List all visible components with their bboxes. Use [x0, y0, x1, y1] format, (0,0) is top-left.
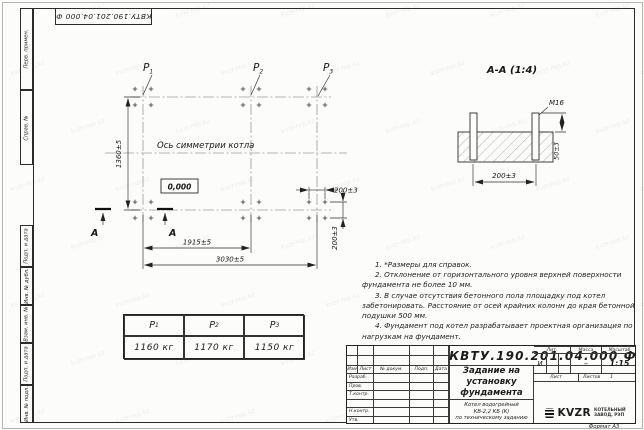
margin-cell-inv-podl: Инв. № подл. [20, 385, 33, 423]
hdr-sub: 3 [275, 322, 279, 329]
note-2: 2. Отклонение от горизонтального уровня … [362, 270, 636, 290]
hdr-dokum: № докум. [374, 366, 410, 374]
hdr-podp: Подп. [410, 366, 434, 374]
lit-cell-2 [547, 354, 559, 374]
load-value-p3: 1150 кг [244, 336, 305, 360]
cell [374, 356, 410, 366]
role-razrab: Разраб. [347, 374, 374, 383]
cell [434, 356, 449, 366]
cell [410, 383, 434, 392]
p1-sub: 1 [149, 69, 153, 76]
title-line: фундамента [460, 388, 522, 399]
hdr-sub: 2 [215, 322, 219, 329]
lit-header: Лит. [534, 346, 571, 354]
product-line: КВ-2,2 КБ (К) [474, 409, 510, 416]
role-empty [347, 400, 374, 409]
margin-label: Инв. № дубл. [24, 268, 30, 304]
kvzr-logo-text: KVZR [557, 407, 591, 419]
title-block-product: Котел водогрейный КВ-2,2 КБ (К) по техни… [449, 400, 534, 424]
title-block: Изм Лист № докум. Подп. Дата Разраб. Про… [346, 345, 636, 424]
cell [374, 346, 410, 356]
cell [434, 374, 449, 383]
mass-header: Масса [571, 346, 602, 354]
hdr-list: Лист [358, 366, 374, 374]
dim-bolt-spacing: 200±3 [492, 172, 516, 180]
section-title: А-А (1:4) [486, 65, 537, 76]
load-table-header-p3: P3 [244, 315, 305, 336]
cell [358, 346, 374, 356]
note-4: 4. Фундамент под котел разрабатывает про… [362, 321, 636, 341]
anchor-bolt-left [470, 113, 477, 160]
load-label-p2: P2 [253, 62, 263, 76]
role-prov: Пров. [347, 383, 374, 392]
scale-header: Масштаб [602, 346, 636, 354]
margin-cell-sprav-n: Справ. № [20, 90, 33, 165]
thread-label: М16 [549, 99, 564, 107]
watermark-text: kvzr-rep.kz [0, 1, 1, 20]
lit-cell-3 [559, 354, 571, 374]
hdr-data: Дата [434, 366, 449, 374]
cell [374, 391, 410, 400]
cell [374, 400, 410, 409]
cell [434, 400, 449, 409]
cell [434, 346, 449, 356]
title-line: установку [466, 377, 516, 388]
load-table: P1 P2 P3 1160 кг 1170 кг 1150 кг [123, 314, 304, 359]
dim-protrusion: 50±3 [553, 142, 561, 160]
scale-value: 1:15 [602, 354, 636, 374]
cell [410, 374, 434, 383]
cell [410, 417, 434, 425]
cell [410, 400, 434, 409]
cell [410, 356, 434, 366]
dim-bolt-h: 200±3 [334, 187, 358, 195]
cell [347, 356, 358, 366]
p3-sub: 3 [329, 69, 333, 76]
section-letter-right: А [168, 228, 176, 239]
kvzr-logo-icon [545, 408, 554, 418]
sheets-value: 1 [610, 375, 613, 380]
dim-bolt-v: 200±3 [331, 226, 339, 250]
anchor-bolt-marks [133, 87, 328, 221]
sheets-cell: Листов 1 [579, 374, 636, 382]
dim-3030: 3030±5 [216, 256, 245, 264]
p2-sub: 2 [259, 69, 263, 76]
lit-value: И [534, 354, 547, 374]
hdr-izm: Изм [347, 366, 358, 374]
cell [434, 383, 449, 392]
cell [374, 374, 410, 383]
cell [358, 356, 374, 366]
dim-1360: 1360±5 [115, 139, 123, 168]
margin-cell-podp-data-1: Подп. и дата [20, 225, 33, 267]
cell [374, 383, 410, 392]
p-label-leaders [143, 75, 330, 96]
sheet-label: Лист [534, 374, 579, 382]
role-nkontr: Н.контр. [347, 408, 374, 417]
margin-label: Инв. № подл. [24, 386, 30, 422]
format-label: Формат А3 [573, 424, 635, 430]
cell [434, 417, 449, 425]
role-tkontr: Т.контр. [347, 391, 374, 400]
product-line: по техническому заданию [455, 415, 527, 422]
m16-leader [539, 107, 548, 115]
cell [374, 417, 410, 425]
load-table-header-p1: P1 [124, 315, 184, 336]
level-mark: 0,000 [168, 183, 192, 192]
margin-cell-vzam-inv: Взам. инв. № [20, 305, 33, 343]
notes-block: 1. *Размеры для справок. 2. Отклонение о… [362, 260, 636, 342]
margin-cell-podp-data-2: Подп. и дата [20, 343, 33, 385]
watermark-text: kvzr-rep.kz [0, 117, 1, 136]
watermark-text: kvzr-rep.kz [0, 349, 1, 368]
title-block-title: Задание на установку фундамента [449, 366, 534, 400]
load-table-header-p2: P2 [184, 315, 244, 336]
company-name: КОТЕЛЬНЫЙ ЗАВОД, РЭП [594, 408, 626, 418]
hdr-sub: 1 [155, 322, 159, 329]
section-letter-left: А [90, 228, 98, 239]
role-utv: Утв. [347, 417, 374, 425]
company-line: ЗАВОД, РЭП [594, 413, 626, 418]
title-block-left-grid: Изм Лист № докум. Подп. Дата Разраб. Про… [347, 346, 449, 424]
anchor-bolt-right [532, 113, 539, 160]
load-value-p2: 1170 кг [184, 336, 244, 360]
cell [434, 391, 449, 400]
load-label-p1: P1 [143, 62, 153, 76]
cell [374, 408, 410, 417]
dim-ext-1360 [124, 97, 140, 210]
note-1: 1. *Размеры для справок. [362, 260, 636, 270]
cell [410, 391, 434, 400]
product-line: Котел водогрейный [464, 402, 518, 409]
cell [434, 408, 449, 417]
margin-label: Взам. инв. № [24, 306, 30, 341]
sheets-label: Листов [583, 375, 600, 380]
title-line: Задание на [463, 366, 520, 377]
cell [410, 408, 434, 417]
margin-cell-perv-primen: Перв. примен. [20, 8, 33, 90]
margin-label: Справ. № [24, 115, 30, 140]
bolt-axis-lines [131, 86, 331, 222]
load-label-p3: P3 [323, 62, 333, 76]
symmetry-axis-label: Ось симметрии котла [157, 141, 254, 151]
watermark-text: kvzr-rep.kz [0, 233, 1, 252]
cell [410, 346, 434, 356]
dim-1915: 1915±5 [183, 239, 212, 247]
dim-ext-bolt-v [330, 202, 347, 218]
mass-value: – [571, 354, 602, 374]
drawing-sheet: kvzr-rep.kzkvzr-rep.kzkvzr-rep.kzkvzr-re… [0, 0, 644, 430]
cell [347, 346, 358, 356]
load-value-p1: 1160 кг [124, 336, 184, 360]
margin-label: Подп. и дата [24, 346, 30, 381]
margin-cell-inv-dubl: Инв. № дубл. [20, 267, 33, 305]
margin-label: Перв. примен. [24, 30, 30, 69]
company-cell: KVZR КОТЕЛЬНЫЙ ЗАВОД, РЭП [534, 402, 636, 424]
note-3: 3. В случае отсутствия бетонного пола пл… [362, 291, 636, 322]
margin-label: Подп. и дата [24, 228, 30, 263]
